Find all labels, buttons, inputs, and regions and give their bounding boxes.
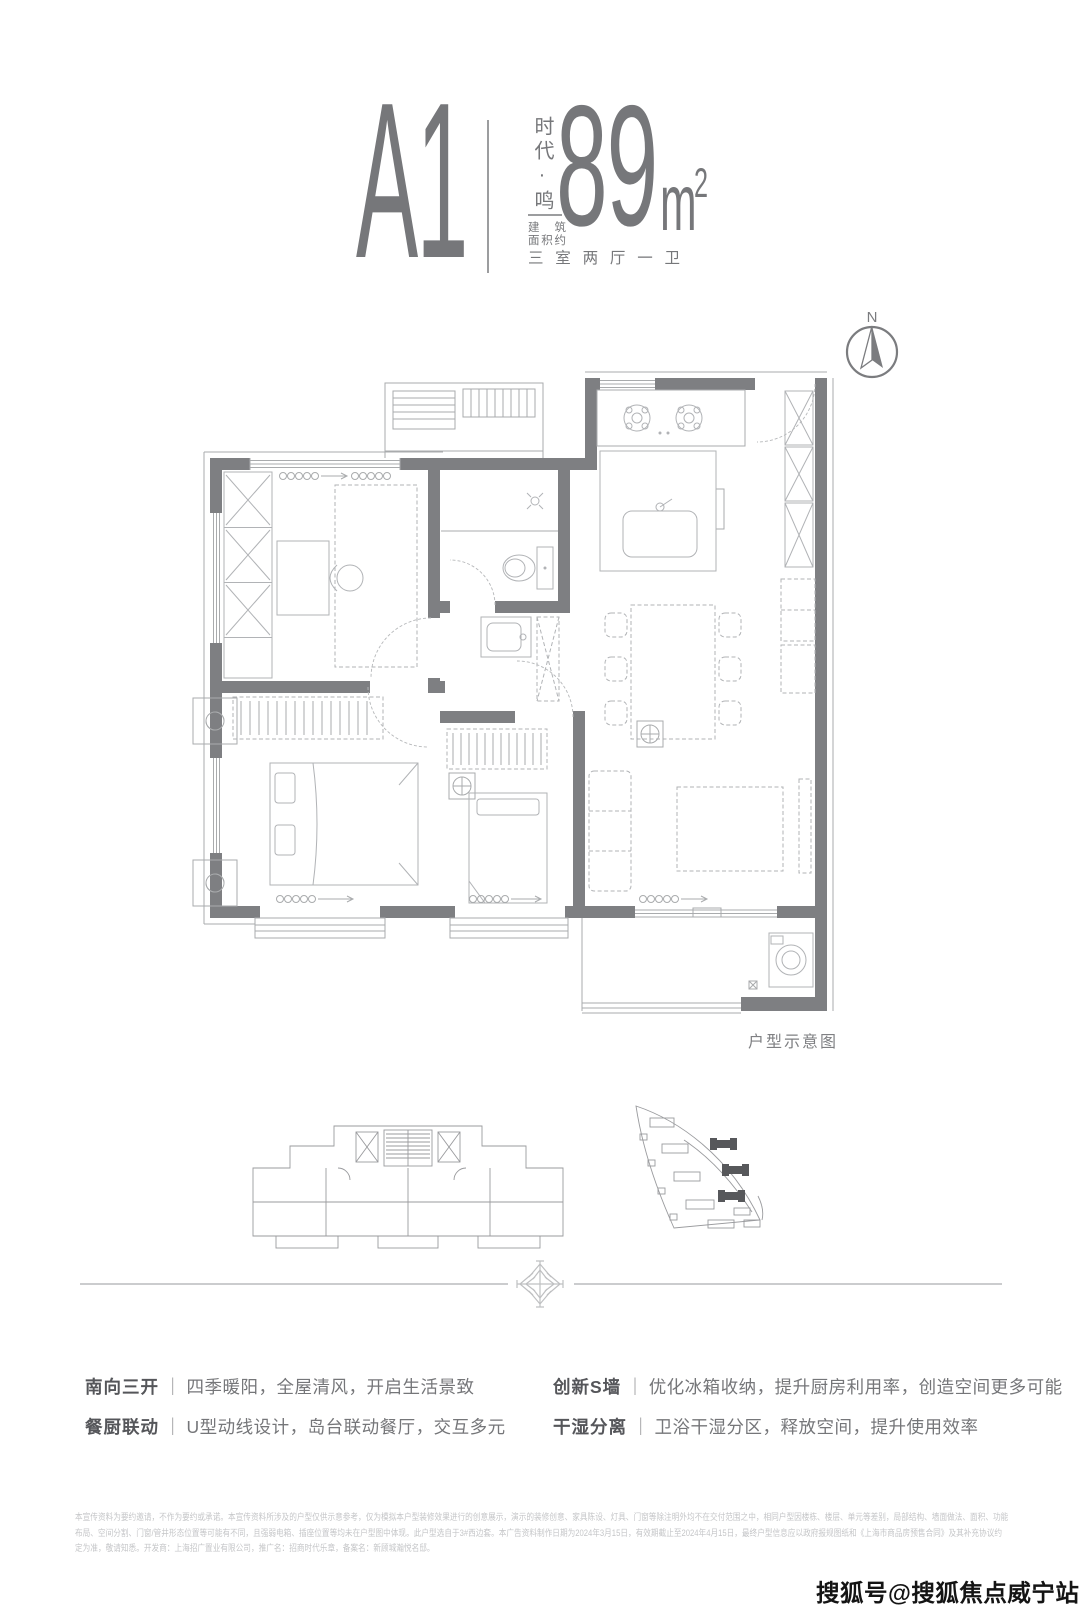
- ac-platform: [385, 383, 543, 458]
- feature-desc: 卫浴干湿分区，释放空间，提升使用效率: [655, 1417, 979, 1437]
- bed1-dashed-zone: [335, 485, 417, 667]
- feature-desc: U型动线设计，岛台联动餐厅，交互多元: [187, 1417, 506, 1437]
- floor-plate-diagram: [238, 1106, 578, 1258]
- divider-line-right: [574, 1283, 1002, 1285]
- project-name-vertical: 时代·鸣: [528, 116, 557, 216]
- kitchen: [597, 390, 745, 571]
- island-sink: [600, 451, 716, 571]
- brand-emblem-icon: [514, 1258, 566, 1310]
- bathroom: [441, 493, 558, 657]
- area-unit-exponent: 2: [694, 162, 708, 204]
- highlighted-buildings: [710, 1138, 749, 1202]
- feature-desc: 优化冰箱收纳，提升厨房利用率，创造空间更多可能: [649, 1377, 1063, 1397]
- floorplan-poster: A1 时代·鸣 建 筑 面积约 89 m 2 三室两厅一卫 N: [0, 0, 1080, 1620]
- feature-row: 餐厨联动｜U型动线设计，岛台联动餐厅，交互多元: [85, 1414, 506, 1439]
- living-room: [589, 721, 811, 903]
- feature-label: 创新S墙: [553, 1377, 621, 1397]
- watermark: 搜狐号@搜狐焦点威宁站: [816, 1574, 1079, 1608]
- compass-icon: N: [840, 306, 904, 390]
- fridge: [781, 579, 815, 693]
- feature-row: 南向三开｜四季暖阳，全屋清风，开启生活景致: [85, 1374, 475, 1399]
- header-divider: [487, 120, 489, 273]
- area-number: 89: [556, 80, 657, 252]
- bedroom1: [224, 472, 417, 678]
- feature-separator: ｜: [632, 1417, 650, 1437]
- feature-separator: ｜: [626, 1377, 644, 1397]
- curtain-row: [280, 473, 391, 480]
- feature-row: 创新S墙｜优化冰箱收纳，提升厨房利用率，创造空间更多可能: [553, 1374, 1063, 1399]
- area-unit: m: [660, 163, 697, 243]
- unit-code: A1: [356, 70, 467, 292]
- divider-line-left: [80, 1283, 508, 1285]
- feature-label: 干湿分离: [553, 1417, 627, 1437]
- site-plan-diagram: [612, 1096, 772, 1236]
- washing-machine: [769, 933, 813, 987]
- dining: [537, 605, 741, 739]
- feature-label: 餐厨联动: [85, 1417, 159, 1437]
- entry-storage: [781, 391, 815, 693]
- bedroom3: [447, 729, 547, 903]
- feature-separator: ｜: [164, 1377, 182, 1397]
- bedroom2: [233, 697, 418, 903]
- vanity: [481, 617, 531, 657]
- feature-desc: 四季暖阳，全屋清风，开启生活景致: [187, 1377, 475, 1397]
- curtain-row: [277, 896, 354, 903]
- layout-type: 三室两厅一卫: [528, 246, 680, 268]
- floor-plan: [185, 363, 845, 1018]
- feature-label: 南向三开: [85, 1377, 159, 1397]
- disclaimer-line: 本宣传资料为要约邀请，不作为要约或承诺。本宣传资料所涉及的户型仅供示意参考，仅为…: [75, 1510, 891, 1526]
- feature-row: 干湿分离｜卫浴干湿分区，释放空间，提升使用效率: [553, 1414, 979, 1439]
- walls: [210, 378, 827, 1011]
- feature-separator: ｜: [164, 1417, 182, 1437]
- curtain-row: [640, 896, 708, 903]
- stove: [624, 405, 702, 435]
- disclaimer: 本宣传资料为要约邀请，不作为要约或承诺。本宣传资料所涉及的户型仅供示意参考，仅为…: [75, 1510, 1035, 1557]
- disclaimer-line: 定为准，敬请知悉。开发商：上海招广置业有限公司，推广名：招商时代乐章，备案名：新…: [75, 1541, 891, 1557]
- plan-caption: 户型示意图: [748, 1028, 838, 1052]
- compass-north-label: N: [867, 309, 878, 326]
- disclaimer-line: 布局、空间分割、门窗/管井形态位置等可能有不同，且强弱电箱、插座位置等均未在户型…: [75, 1526, 891, 1542]
